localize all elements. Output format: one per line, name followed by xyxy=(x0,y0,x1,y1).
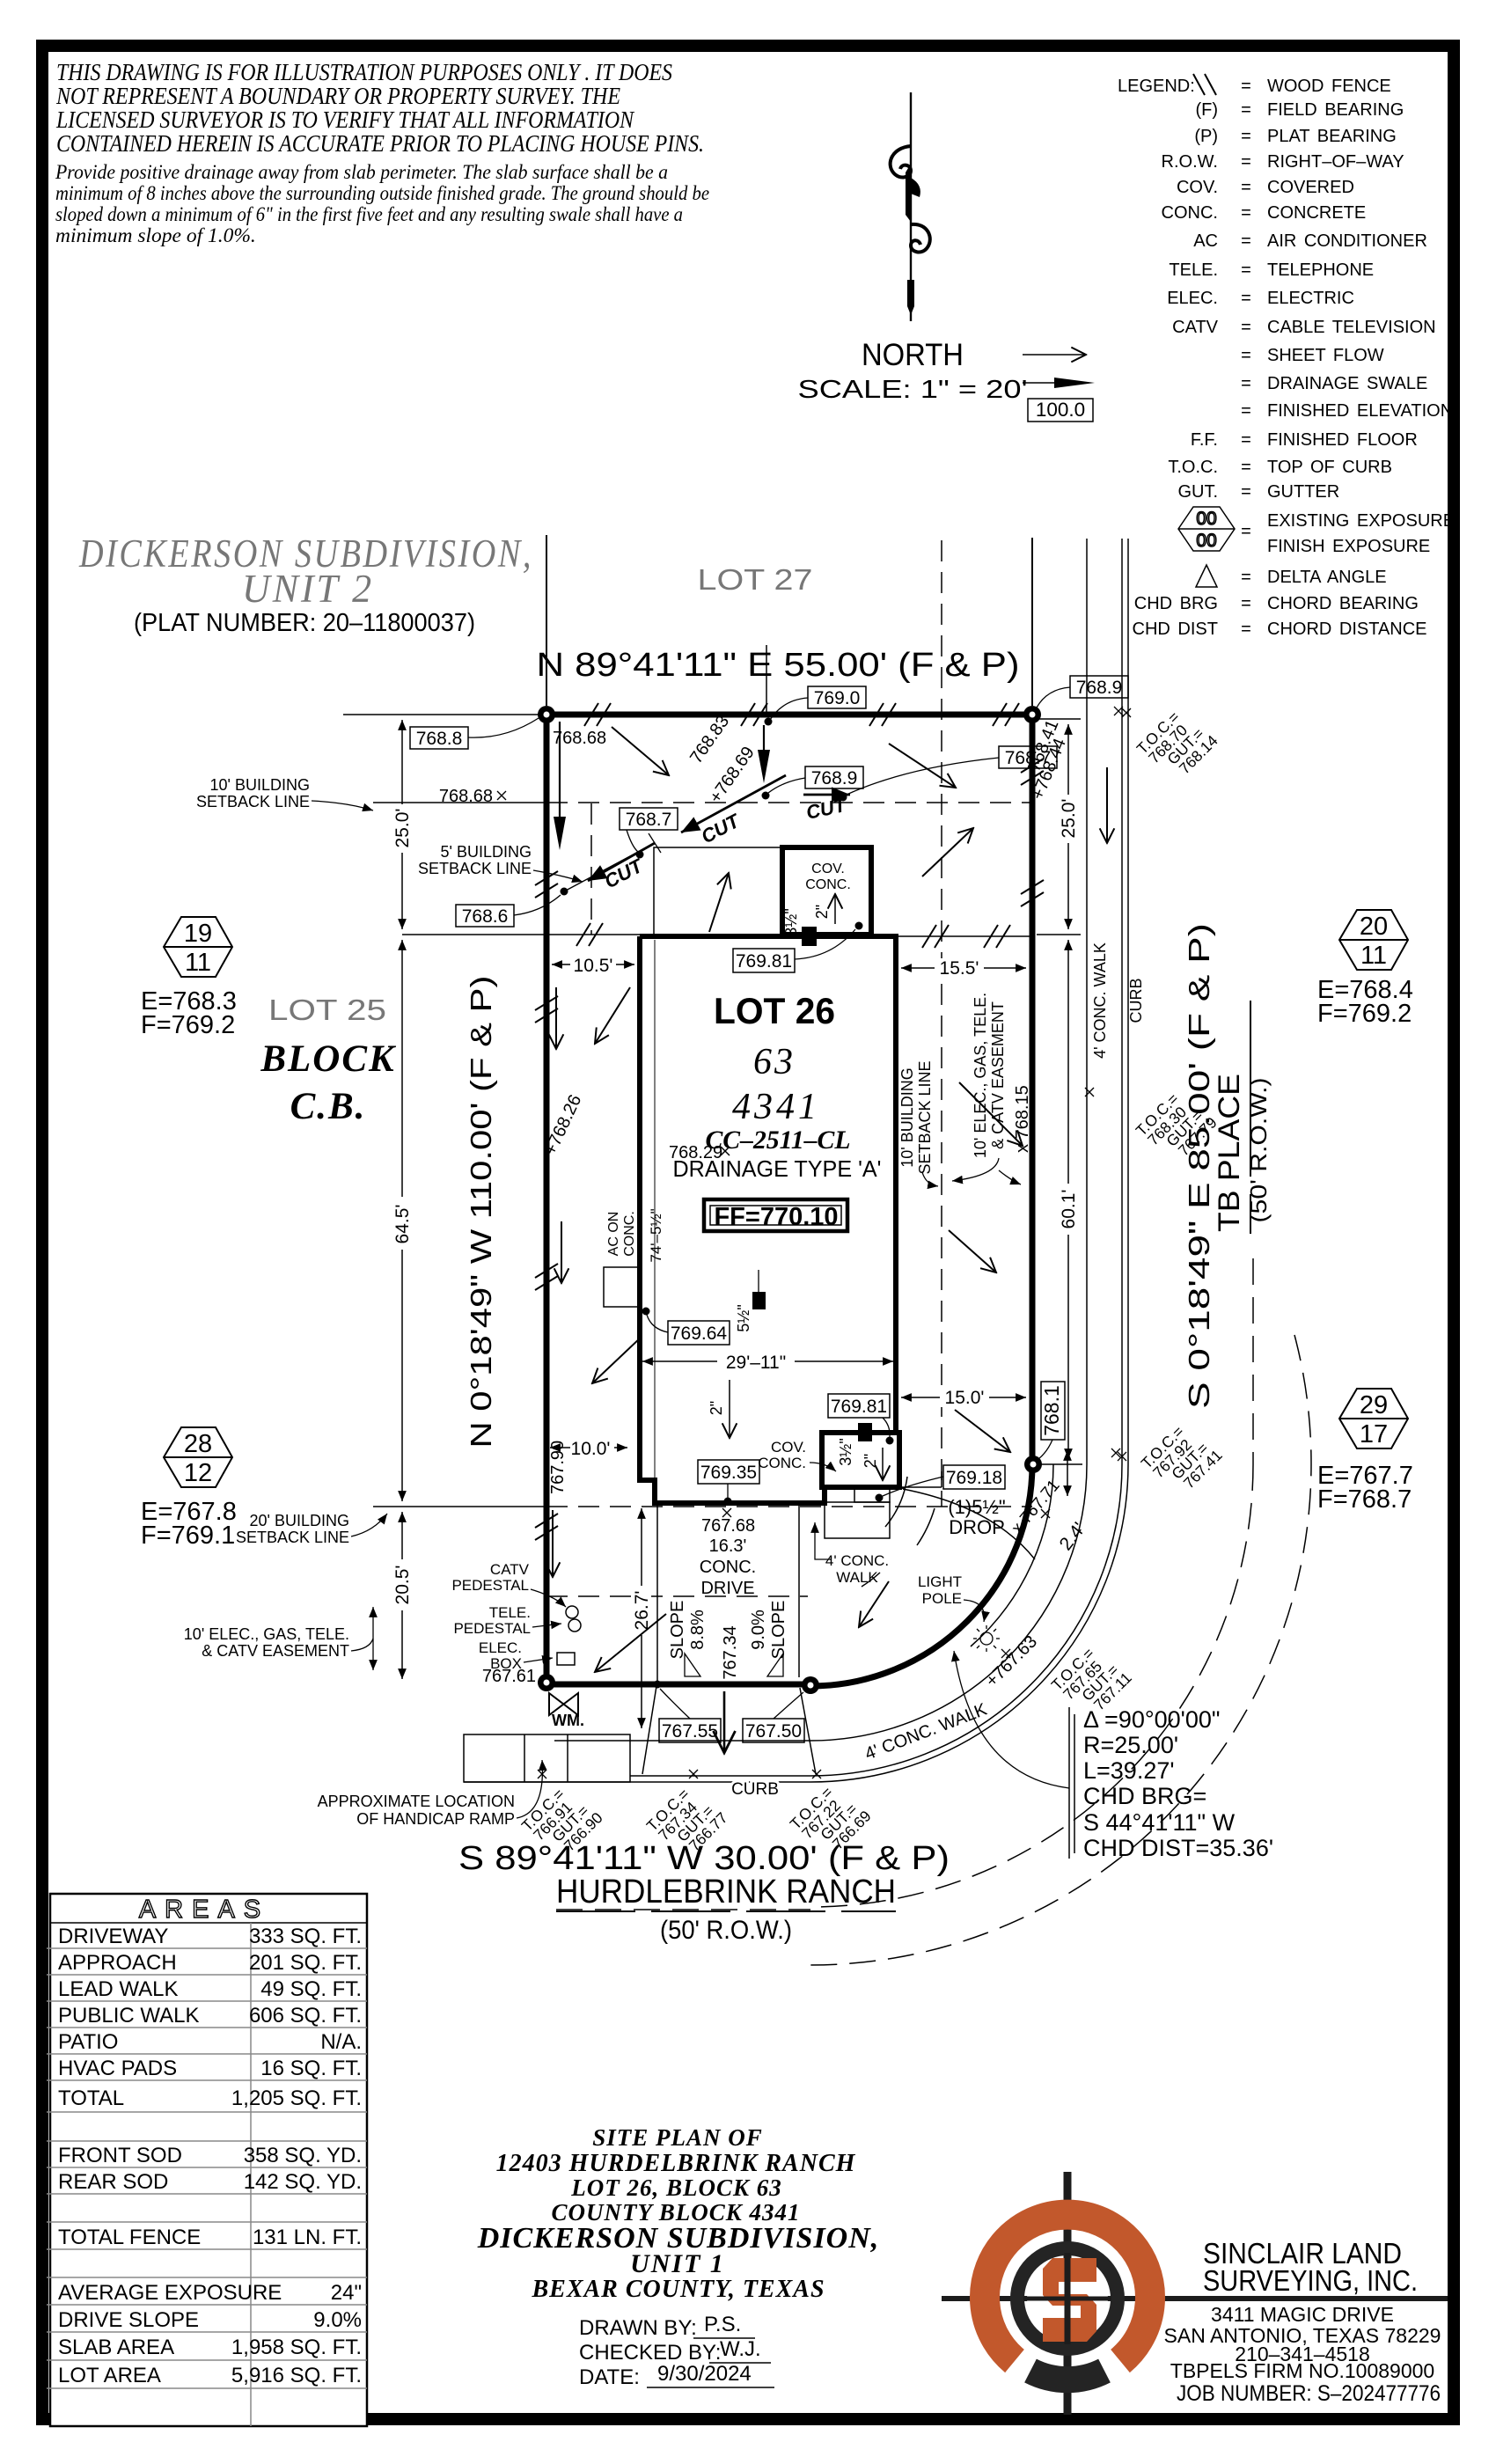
svg-text:131 LN. FT.: 131 LN. FT. xyxy=(253,2226,362,2249)
svg-text:F.F.: F.F. xyxy=(1191,430,1218,450)
svg-text:26.7': 26.7' xyxy=(632,1591,652,1631)
svg-text:10' BUILDING: 10' BUILDING xyxy=(898,1067,916,1167)
svg-text:BOX: BOX xyxy=(490,1655,522,1672)
svg-text:GUTTER: GUTTER xyxy=(1267,482,1339,502)
svg-text:10.5': 10.5' xyxy=(574,956,613,976)
svg-text:AC ON: AC ON xyxy=(606,1212,621,1257)
svg-text:F=769.2: F=769.2 xyxy=(1317,1000,1412,1028)
svg-text:RIGHT–OF–WAY: RIGHT–OF–WAY xyxy=(1267,152,1404,172)
svg-text:=: = xyxy=(1241,401,1251,421)
svg-text:49 SQ. FT.: 49 SQ. FT. xyxy=(260,1977,362,2001)
svg-text:& CATV EASEMENT: & CATV EASEMENT xyxy=(989,1001,1007,1149)
svg-text:358 SQ. YD.: 358 SQ. YD. xyxy=(244,2144,362,2167)
svg-text:768.1: 768.1 xyxy=(1040,1385,1063,1436)
svg-text:APPROXIMATE LOCATION: APPROXIMATE LOCATION xyxy=(318,1793,515,1810)
svg-text:WOOD FENCE: WOOD FENCE xyxy=(1267,77,1391,96)
svg-text:=: = xyxy=(1241,127,1251,146)
svg-text:CONCRETE: CONCRETE xyxy=(1267,203,1366,223)
svg-text:SHEET FLOW: SHEET FLOW xyxy=(1267,346,1384,365)
svg-text:ELEC.: ELEC. xyxy=(1167,289,1218,308)
svg-text:SETBACK LINE: SETBACK LINE xyxy=(236,1529,349,1546)
svg-text:PEDESTAL: PEDESTAL xyxy=(451,1577,529,1594)
svg-text:FINISHED ELEVATION: FINISHED ELEVATION xyxy=(1267,401,1453,421)
svg-text:768.6: 768.6 xyxy=(462,906,509,927)
svg-text:TELEPHONE: TELEPHONE xyxy=(1267,260,1374,280)
svg-text:60.1': 60.1' xyxy=(1059,1190,1079,1229)
svg-text:UNIT 2: UNIT 2 xyxy=(242,567,374,611)
svg-text:=: = xyxy=(1241,203,1251,223)
svg-text:REAR SOD: REAR SOD xyxy=(58,2170,168,2194)
svg-text:=: = xyxy=(1241,260,1251,280)
svg-text:SLOPE: SLOPE xyxy=(668,1601,687,1660)
svg-text:20' BUILDING: 20' BUILDING xyxy=(250,1512,349,1529)
svg-text:=: = xyxy=(1241,100,1251,120)
svg-text:CONC.: CONC. xyxy=(622,1211,637,1257)
svg-text:POLE: POLE xyxy=(922,1590,962,1607)
svg-text:1,205 SQ. FT.: 1,205 SQ. FT. xyxy=(231,2086,362,2110)
svg-text:00: 00 xyxy=(1196,531,1216,551)
svg-text:LOT 27: LOT 27 xyxy=(698,563,813,596)
svg-text:10' ELEC., GAS, TELE.: 10' ELEC., GAS, TELE. xyxy=(184,1625,349,1643)
svg-text:1,958 SQ. FT.: 1,958 SQ. FT. xyxy=(231,2336,362,2359)
svg-text:LIGHT: LIGHT xyxy=(918,1573,962,1590)
svg-text:CURB: CURB xyxy=(731,1780,779,1799)
svg-text:769.64: 769.64 xyxy=(671,1324,728,1344)
svg-text:FF=770.10: FF=770.10 xyxy=(714,1203,838,1231)
svg-text:768.68: 768.68 xyxy=(553,729,606,748)
svg-text:FINISHED FLOOR: FINISHED FLOOR xyxy=(1267,430,1418,450)
svg-text:142 SQ. YD.: 142 SQ. YD. xyxy=(244,2170,362,2194)
svg-text:=: = xyxy=(1241,458,1251,477)
svg-text:DATE:: DATE: xyxy=(579,2365,640,2389)
svg-text:DRAWN BY:: DRAWN BY: xyxy=(579,2316,697,2340)
svg-text:(50' R.O.W.): (50' R.O.W.) xyxy=(1245,1078,1272,1223)
svg-text:CHORD DISTANCE: CHORD DISTANCE xyxy=(1267,620,1427,639)
svg-text:768.68: 768.68 xyxy=(439,787,493,806)
svg-text:CHD DIST=35.36': CHD DIST=35.36' xyxy=(1083,1835,1273,1861)
svg-text:ELECTRIC: ELECTRIC xyxy=(1267,289,1354,308)
svg-text:9.0%: 9.0% xyxy=(313,2308,362,2332)
svg-text:BEXAR COUNTY, TEXAS: BEXAR COUNTY, TEXAS xyxy=(531,2276,825,2303)
svg-text:minimum of 8 inches above the: minimum of 8 inches above the surroundin… xyxy=(55,182,709,205)
svg-text:DROP: DROP xyxy=(949,1516,1005,1538)
svg-text:=: = xyxy=(1241,594,1251,613)
svg-text:EXISTING EXPOSURE: EXISTING EXPOSURE xyxy=(1267,511,1455,531)
svg-text:=: = xyxy=(1241,289,1251,308)
svg-text:ELEC.: ELEC. xyxy=(479,1639,522,1656)
svg-text:768.8: 768.8 xyxy=(416,729,463,749)
svg-text:PATIO: PATIO xyxy=(58,2030,118,2054)
svg-text:=: = xyxy=(1241,77,1251,96)
svg-text:12403 HURDELBRINK RANCH: 12403 HURDELBRINK RANCH xyxy=(496,2150,856,2177)
svg-text:(PLAT NUMBER: 20–11800037): (PLAT NUMBER: 20–11800037) xyxy=(134,609,475,637)
svg-text:TELE.: TELE. xyxy=(1169,260,1218,280)
svg-text:00: 00 xyxy=(1196,509,1216,529)
svg-text:TOTAL FENCE: TOTAL FENCE xyxy=(58,2226,201,2249)
svg-text:Provide positive drainage away: Provide positive drainage away from slab… xyxy=(55,161,668,184)
svg-text:sloped down a minimum of 6" in: sloped down a minimum of 6" in the first… xyxy=(55,203,683,226)
svg-text:10.0': 10.0' xyxy=(571,1439,611,1459)
svg-text:DRIVE: DRIVE xyxy=(700,1579,754,1598)
svg-text:JOB NUMBER: S–202477776: JOB NUMBER: S–202477776 xyxy=(1177,2381,1441,2406)
svg-text:PLAT BEARING: PLAT BEARING xyxy=(1267,127,1397,146)
svg-text:COV.: COV. xyxy=(1177,178,1218,197)
svg-text:SETBACK LINE: SETBACK LINE xyxy=(916,1060,934,1174)
svg-text:4' CONC.: 4' CONC. xyxy=(825,1552,889,1569)
svg-text:768.7: 768.7 xyxy=(626,810,672,830)
svg-text:FINISH EXPOSURE: FINISH EXPOSURE xyxy=(1267,537,1430,556)
svg-text:TB PLACE: TB PLACE xyxy=(1213,1074,1246,1232)
svg-text:TOP OF CURB: TOP OF CURB xyxy=(1267,458,1392,477)
svg-text:201 SQ. FT.: 201 SQ. FT. xyxy=(249,1951,362,1975)
svg-text:SETBACK LINE: SETBACK LINE xyxy=(418,860,532,877)
svg-text:SCALE: 1" = 20': SCALE: 1" = 20' xyxy=(798,376,1028,404)
svg-text:4' CONC. WALK: 4' CONC. WALK xyxy=(1091,942,1109,1059)
svg-text:767.50: 767.50 xyxy=(745,1721,802,1742)
svg-text:AIR CONDITIONER: AIR CONDITIONER xyxy=(1267,231,1427,251)
svg-text:CHORD BEARING: CHORD BEARING xyxy=(1267,594,1419,613)
svg-text:TOTAL: TOTAL xyxy=(58,2086,124,2110)
svg-text:=: = xyxy=(1241,482,1251,502)
svg-text:12: 12 xyxy=(184,1459,212,1487)
svg-text:16 SQ. FT.: 16 SQ. FT. xyxy=(260,2057,362,2080)
svg-text:CONC.: CONC. xyxy=(758,1455,806,1471)
svg-text:29'–11": 29'–11" xyxy=(726,1353,786,1373)
svg-text:=: = xyxy=(1241,374,1251,393)
svg-text:T.O.C.: T.O.C. xyxy=(1168,458,1218,477)
svg-text:11: 11 xyxy=(185,949,211,977)
svg-text:F=768.7: F=768.7 xyxy=(1317,1485,1412,1514)
svg-text:606 SQ. FT.: 606 SQ. FT. xyxy=(249,2004,362,2028)
svg-text:4341: 4341 xyxy=(732,1087,820,1127)
svg-text:TBPELS FIRM NO.10089000: TBPELS FIRM NO.10089000 xyxy=(1170,2359,1434,2382)
svg-text:TELE.: TELE. xyxy=(489,1604,531,1621)
svg-text:768.9: 768.9 xyxy=(811,768,858,788)
svg-text:=: = xyxy=(1241,152,1251,172)
svg-text:CHD BRG=: CHD BRG= xyxy=(1083,1783,1206,1809)
svg-text:9.0%: 9.0% xyxy=(749,1610,768,1650)
svg-text:OF HANDICAP RAMP: OF HANDICAP RAMP xyxy=(356,1810,515,1828)
svg-text:17: 17 xyxy=(1360,1420,1388,1448)
svg-text:minimum slope of 1.0%.: minimum slope of 1.0%. xyxy=(55,224,256,247)
svg-text:3411 MAGIC DRIVE: 3411 MAGIC DRIVE xyxy=(1211,2303,1394,2326)
svg-text:COV.: COV. xyxy=(811,862,845,876)
svg-text:N 89°41'11" E 55.00' (F & P): N 89°41'11" E 55.00' (F & P) xyxy=(537,647,1020,684)
svg-text:WALK: WALK xyxy=(836,1569,878,1586)
svg-text:=: = xyxy=(1241,346,1251,365)
svg-text:(1)5½": (1)5½" xyxy=(948,1496,1005,1518)
svg-text:LOT 25: LOT 25 xyxy=(268,994,386,1026)
svg-text:5½": 5½" xyxy=(735,1304,752,1331)
svg-text:(50' R.O.W.): (50' R.O.W.) xyxy=(660,1916,792,1945)
svg-text:2": 2" xyxy=(813,905,831,919)
svg-text:SLAB AREA: SLAB AREA xyxy=(58,2336,174,2359)
svg-text:SETBACK LINE: SETBACK LINE xyxy=(196,793,310,810)
svg-text:28: 28 xyxy=(184,1430,212,1458)
svg-text:WM.: WM. xyxy=(552,1712,584,1729)
svg-text:333 SQ. FT.: 333 SQ. FT. xyxy=(249,1925,362,1948)
svg-text:COV.: COV. xyxy=(771,1439,806,1456)
svg-text:& CATV EASEMENT: & CATV EASEMENT xyxy=(202,1642,349,1660)
svg-text:=: = xyxy=(1241,620,1251,639)
svg-text:R=25.00': R=25.00' xyxy=(1083,1732,1178,1758)
svg-text:20: 20 xyxy=(1360,913,1388,941)
svg-text:768.9: 768.9 xyxy=(1076,678,1123,698)
svg-text:769.35: 769.35 xyxy=(700,1463,757,1483)
svg-text:CHD DIST: CHD DIST xyxy=(1133,620,1218,639)
svg-text:DRAINAGE TYPE 'A': DRAINAGE TYPE 'A' xyxy=(673,1155,882,1182)
svg-text:Δ =90°00'00": Δ =90°00'00" xyxy=(1083,1706,1220,1733)
svg-text:HURDLEBRINK RANCH: HURDLEBRINK RANCH xyxy=(556,1874,896,1910)
svg-text:64.5': 64.5' xyxy=(392,1205,413,1244)
svg-text:=: = xyxy=(1241,231,1251,251)
svg-text:GUT.: GUT. xyxy=(1177,482,1218,502)
svg-text:N 0°18'49" W 110.00' (F & P): N 0°18'49" W 110.00' (F & P) xyxy=(465,976,497,1448)
svg-text:PUBLIC WALK: PUBLIC WALK xyxy=(58,2004,200,2028)
svg-text:16.3': 16.3' xyxy=(709,1536,747,1556)
svg-text:(F): (F) xyxy=(1195,100,1218,120)
svg-text:9/30/2024: 9/30/2024 xyxy=(657,2362,752,2386)
svg-text:W.J.: W.J. xyxy=(720,2337,761,2361)
svg-text:DRIVEWAY: DRIVEWAY xyxy=(58,1925,168,1948)
svg-text:769.18: 769.18 xyxy=(946,1468,1002,1488)
svg-text:5,916 SQ. FT.: 5,916 SQ. FT. xyxy=(231,2364,362,2387)
svg-text:=: = xyxy=(1241,318,1251,337)
svg-text:LOT AREA: LOT AREA xyxy=(58,2364,161,2387)
svg-text:767.68: 767.68 xyxy=(701,1516,755,1536)
svg-text:74'–5½": 74'–5½" xyxy=(648,1208,664,1262)
svg-text:15.0': 15.0' xyxy=(945,1388,985,1408)
svg-text:(P): (P) xyxy=(1194,127,1218,146)
svg-text:DRIVE SLOPE: DRIVE SLOPE xyxy=(58,2308,199,2332)
svg-text:AVERAGE EXPOSURE: AVERAGE EXPOSURE xyxy=(58,2281,282,2305)
svg-text:LOT 26: LOT 26 xyxy=(714,990,835,1031)
svg-text:FIELD BEARING: FIELD BEARING xyxy=(1267,100,1404,120)
svg-text:CHD BRG: CHD BRG xyxy=(1134,594,1218,613)
svg-text:CONC.: CONC. xyxy=(700,1558,756,1577)
svg-text:24": 24" xyxy=(331,2281,362,2305)
svg-text:2": 2" xyxy=(862,1454,879,1468)
svg-text:CATV: CATV xyxy=(1172,318,1219,337)
svg-text:SITE PLAN OF: SITE PLAN OF xyxy=(592,2124,763,2151)
svg-text:P.S.: P.S. xyxy=(704,2313,741,2336)
svg-text:CONTAINED HEREIN IS ACCURATE P: CONTAINED HEREIN IS ACCURATE PRIOR TO PL… xyxy=(56,129,704,157)
svg-text:19: 19 xyxy=(184,920,212,948)
svg-text:L=39.27': L=39.27' xyxy=(1083,1757,1175,1784)
svg-text:769.0: 769.0 xyxy=(814,688,861,708)
svg-text:=: = xyxy=(1241,568,1251,587)
svg-text:769.81: 769.81 xyxy=(831,1397,887,1417)
svg-text:20.5': 20.5' xyxy=(392,1566,413,1605)
svg-text:11: 11 xyxy=(1360,942,1387,970)
svg-text:HVAC PADS: HVAC PADS xyxy=(58,2057,177,2080)
svg-text:FRONT SOD: FRONT SOD xyxy=(58,2144,182,2167)
svg-text:63: 63 xyxy=(753,1042,796,1082)
svg-text:SLOPE: SLOPE xyxy=(769,1601,788,1660)
svg-text:CHECKED BY:: CHECKED BY: xyxy=(579,2341,721,2365)
svg-text:CONC.: CONC. xyxy=(1162,203,1218,223)
svg-text:DRAINAGE SWALE: DRAINAGE SWALE xyxy=(1267,374,1427,393)
svg-text:5' BUILDING: 5' BUILDING xyxy=(441,843,532,861)
svg-text:SURVEYING, INC.: SURVEYING, INC. xyxy=(1203,2264,1418,2297)
svg-text:29: 29 xyxy=(1360,1391,1388,1419)
svg-text:25.0': 25.0' xyxy=(1059,799,1079,839)
svg-text:UNIT 1: UNIT 1 xyxy=(630,2249,725,2278)
svg-text:769.81: 769.81 xyxy=(736,951,792,972)
svg-text:R.O.W.: R.O.W. xyxy=(1162,152,1218,172)
svg-text:767.55: 767.55 xyxy=(662,1721,718,1742)
svg-text:CURB: CURB xyxy=(1127,978,1145,1023)
svg-text:S 44°41'11" W: S 44°41'11" W xyxy=(1083,1809,1236,1836)
svg-text:DELTA ANGLE: DELTA ANGLE xyxy=(1267,568,1387,587)
svg-text:100.0: 100.0 xyxy=(1036,399,1085,421)
svg-text:25.0': 25.0' xyxy=(392,809,413,848)
svg-text:NORTH: NORTH xyxy=(862,338,964,372)
svg-text:CC–2511–CL: CC–2511–CL xyxy=(706,1126,851,1155)
svg-text:8.8%: 8.8% xyxy=(688,1610,708,1650)
svg-text:LEAD WALK: LEAD WALK xyxy=(58,1977,179,2001)
svg-text:767.90: 767.90 xyxy=(548,1441,568,1494)
svg-text:LEGEND:: LEGEND: xyxy=(1118,77,1195,96)
svg-text:C.B.: C.B. xyxy=(290,1086,367,1127)
svg-text:15.5': 15.5' xyxy=(940,958,979,979)
svg-text:x 768.15: x 768.15 xyxy=(1013,1085,1032,1153)
svg-text:CONC.: CONC. xyxy=(805,877,851,892)
svg-text:LOT 26, BLOCK 63: LOT 26, BLOCK 63 xyxy=(570,2174,782,2201)
svg-text:=: = xyxy=(1241,178,1251,197)
svg-text:AC: AC xyxy=(1193,231,1218,251)
svg-text:=: = xyxy=(1241,522,1251,541)
svg-text:=: = xyxy=(1241,430,1251,450)
svg-text:3½": 3½" xyxy=(782,908,800,935)
svg-text:3½": 3½" xyxy=(837,1438,854,1465)
svg-text:F=769.1: F=769.1 xyxy=(141,1522,235,1550)
svg-text:N/A.: N/A. xyxy=(320,2030,362,2054)
svg-text:BLOCK: BLOCK xyxy=(260,1038,397,1080)
svg-text:AREAS: AREAS xyxy=(139,1896,269,1924)
svg-text:767.34: 767.34 xyxy=(721,1625,740,1679)
svg-text:CATV: CATV xyxy=(490,1561,530,1578)
svg-text:APPROACH: APPROACH xyxy=(58,1951,177,1975)
svg-text:PEDESTAL: PEDESTAL xyxy=(453,1620,531,1637)
svg-text:F=769.2: F=769.2 xyxy=(141,1011,235,1039)
svg-text:S 0°18'49" E 85.00' (F & P): S 0°18'49" E 85.00' (F & P) xyxy=(1183,923,1215,1409)
svg-text:10' ELEC., GAS, TELE.: 10' ELEC., GAS, TELE. xyxy=(972,993,989,1158)
svg-text:10' BUILDING: 10' BUILDING xyxy=(210,776,310,794)
svg-text:2": 2" xyxy=(708,1401,725,1415)
svg-text:COVERED: COVERED xyxy=(1267,178,1354,197)
svg-text:CABLE TELEVISION: CABLE TELEVISION xyxy=(1267,318,1436,337)
